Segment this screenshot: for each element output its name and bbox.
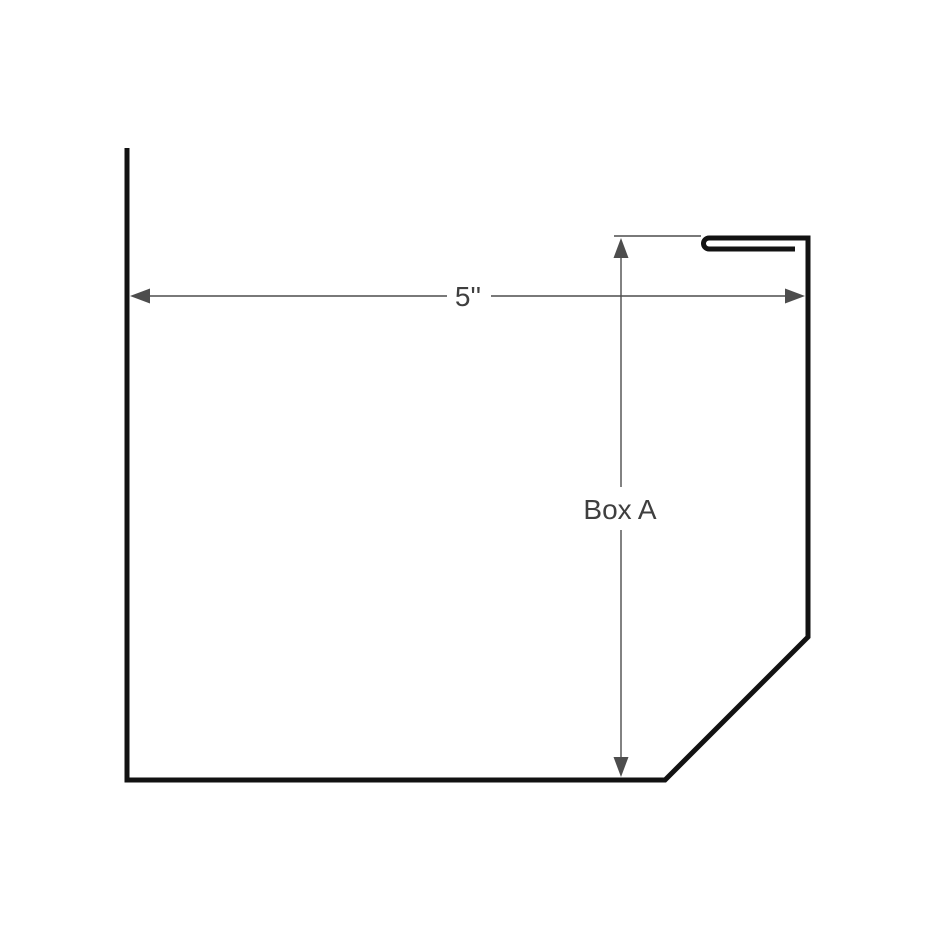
profile-path	[127, 148, 808, 780]
height-dim-arrowhead-up-icon	[614, 238, 629, 258]
drawing-area: 5'' Box A	[0, 0, 933, 933]
height-dimension: Box A	[583, 236, 701, 777]
width-dim-arrowhead-right-icon	[785, 289, 805, 304]
part-outline	[127, 148, 808, 780]
width-dim-arrowhead-left-icon	[130, 289, 150, 304]
width-dimension-label: 5''	[455, 281, 481, 312]
height-dim-arrowhead-down-icon	[614, 757, 629, 777]
drawing-canvas: 5'' Box A	[0, 0, 933, 933]
width-dimension: 5''	[130, 281, 805, 312]
dimension-annotations: 5'' Box A	[130, 236, 805, 777]
height-dimension-label: Box A	[583, 494, 656, 525]
